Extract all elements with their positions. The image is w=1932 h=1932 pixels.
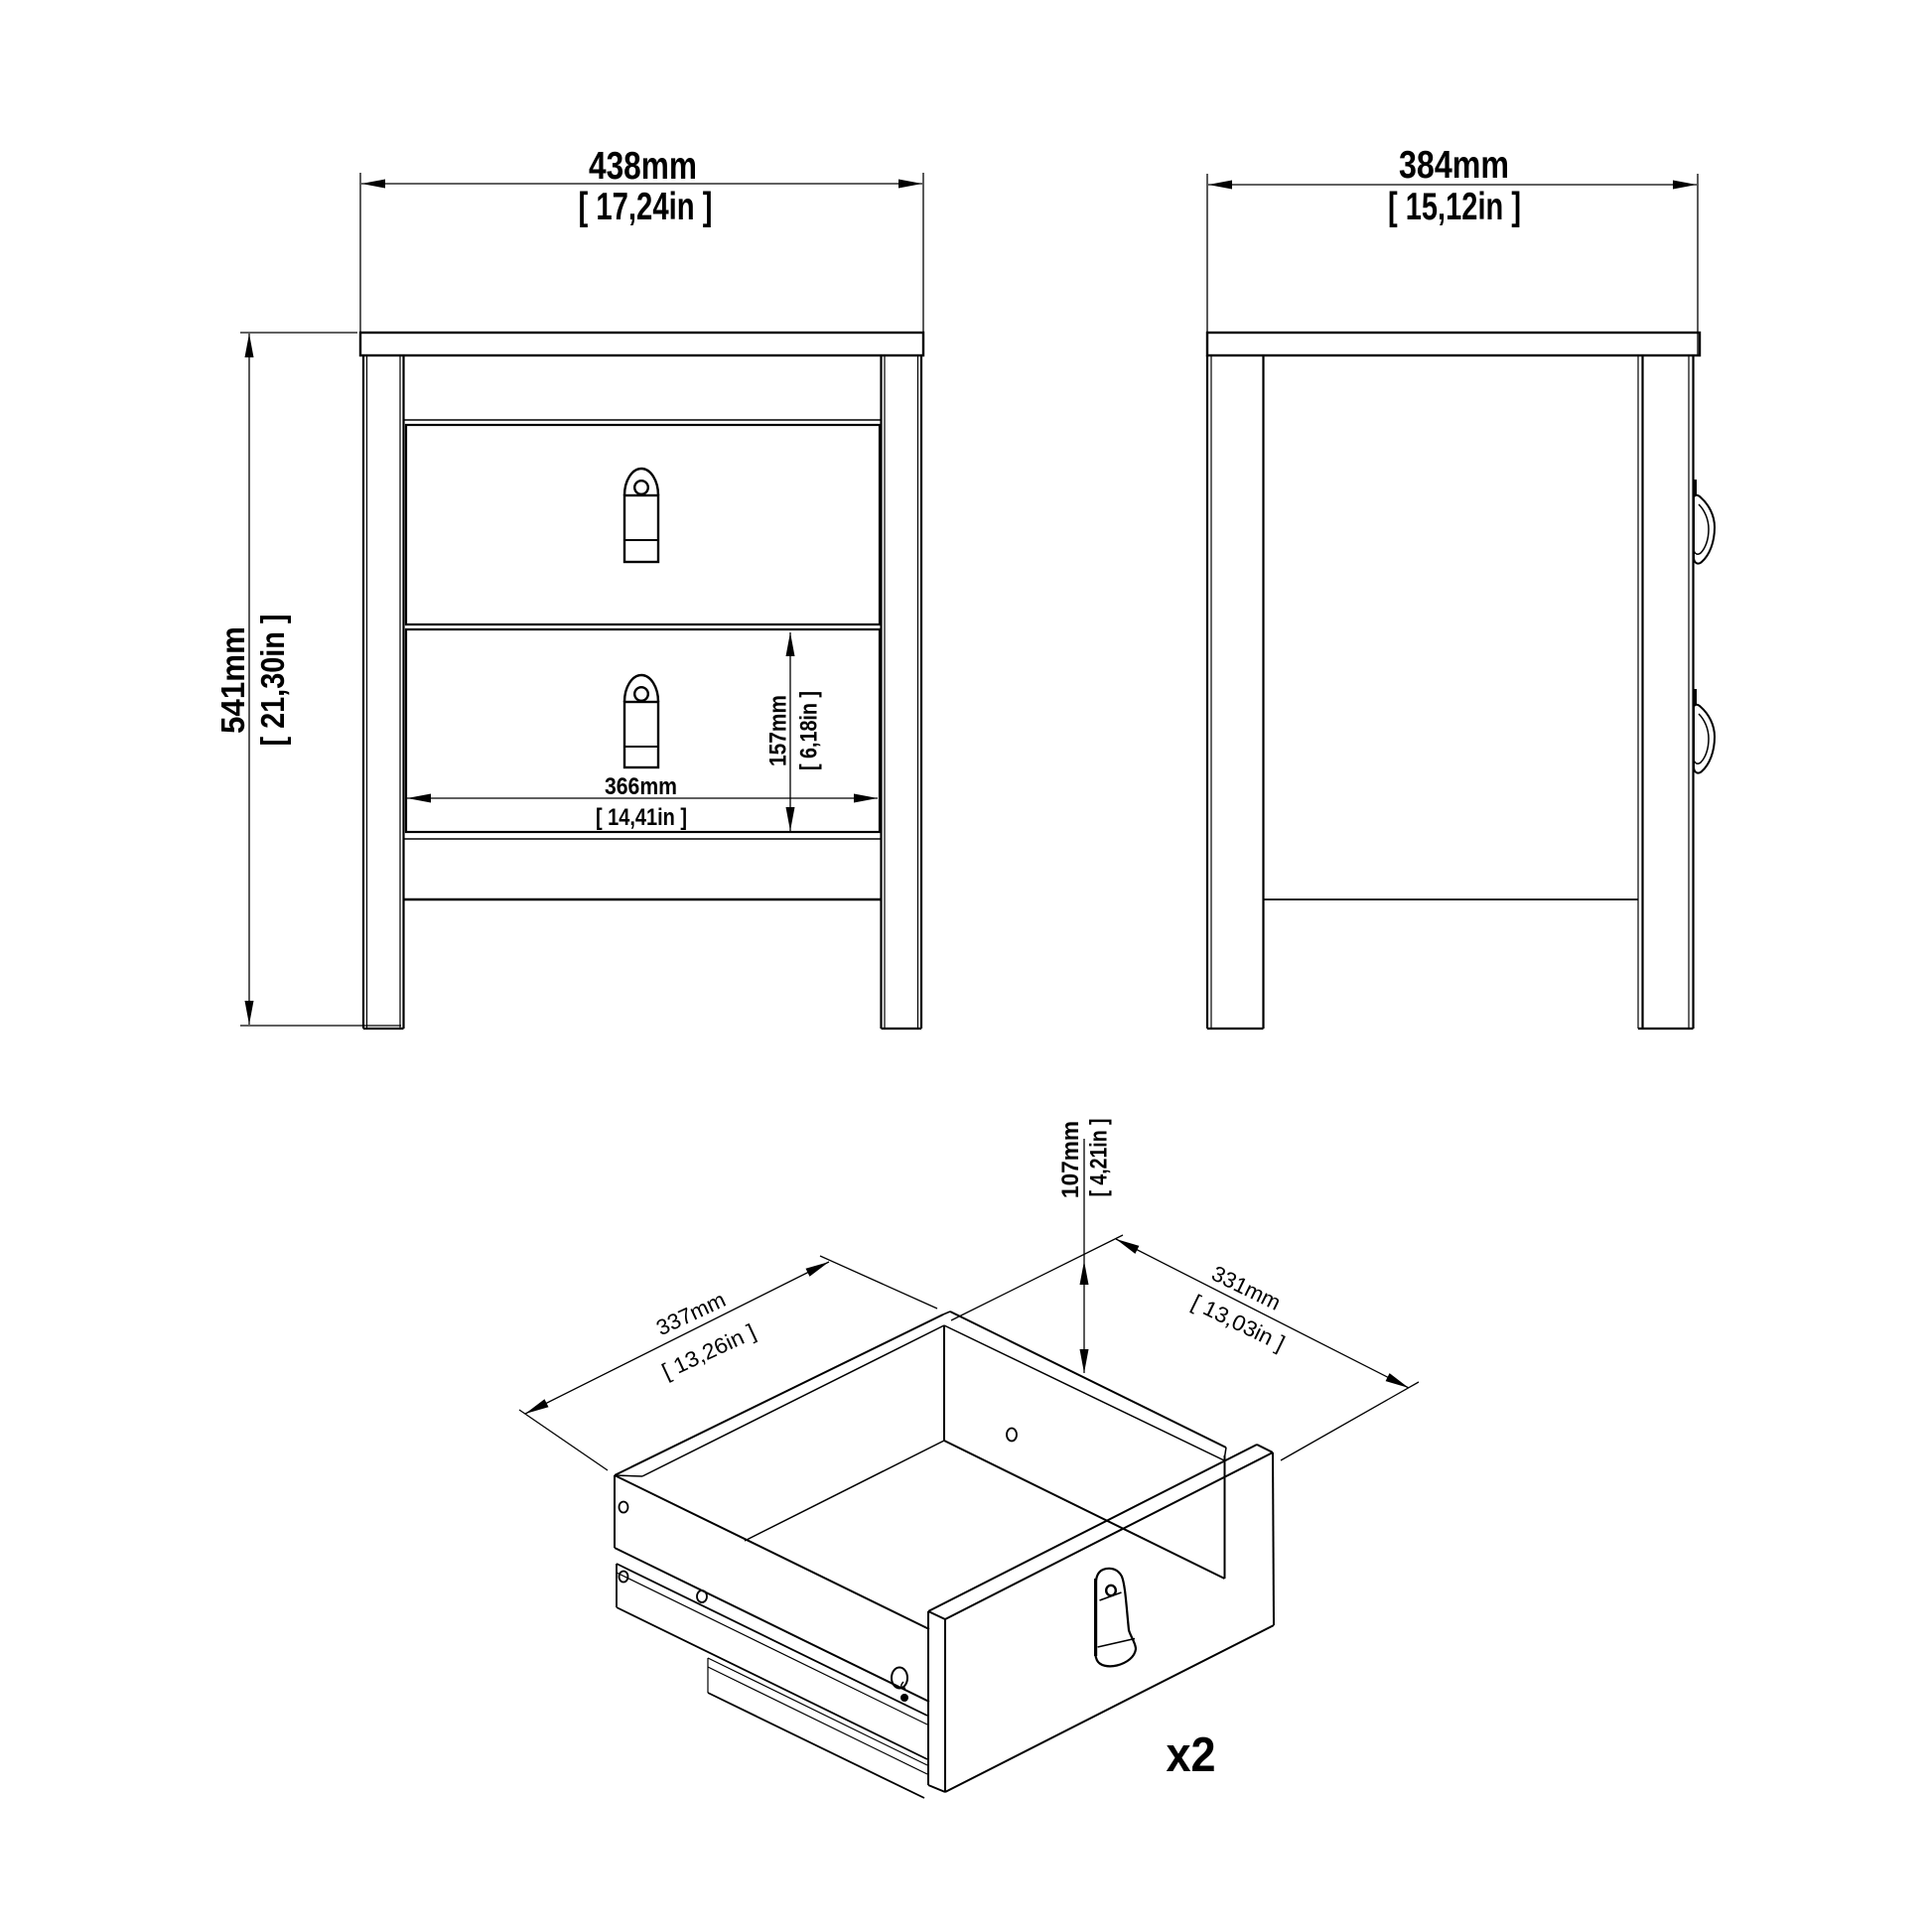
svg-text:157mm: 157mm bbox=[765, 695, 792, 766]
svg-text:384mm: 384mm bbox=[1399, 144, 1509, 187]
svg-text:[ 17,24in ]: [ 17,24in ] bbox=[579, 186, 713, 228]
svg-text:x2: x2 bbox=[1167, 1727, 1216, 1782]
svg-text:[ 15,12in ]: [ 15,12in ] bbox=[1388, 186, 1521, 228]
svg-text:107mm: 107mm bbox=[1057, 1121, 1084, 1198]
svg-text:[ 4,21in ]: [ 4,21in ] bbox=[1086, 1119, 1113, 1197]
svg-text:438mm: 438mm bbox=[589, 145, 697, 188]
svg-text:[ 14,41in ]: [ 14,41in ] bbox=[596, 804, 687, 831]
svg-text:541mm: 541mm bbox=[215, 626, 252, 734]
svg-text:366mm: 366mm bbox=[605, 773, 677, 800]
svg-text:[ 6,18in ]: [ 6,18in ] bbox=[796, 691, 823, 770]
svg-text:[ 21,30in ]: [ 21,30in ] bbox=[255, 615, 292, 747]
